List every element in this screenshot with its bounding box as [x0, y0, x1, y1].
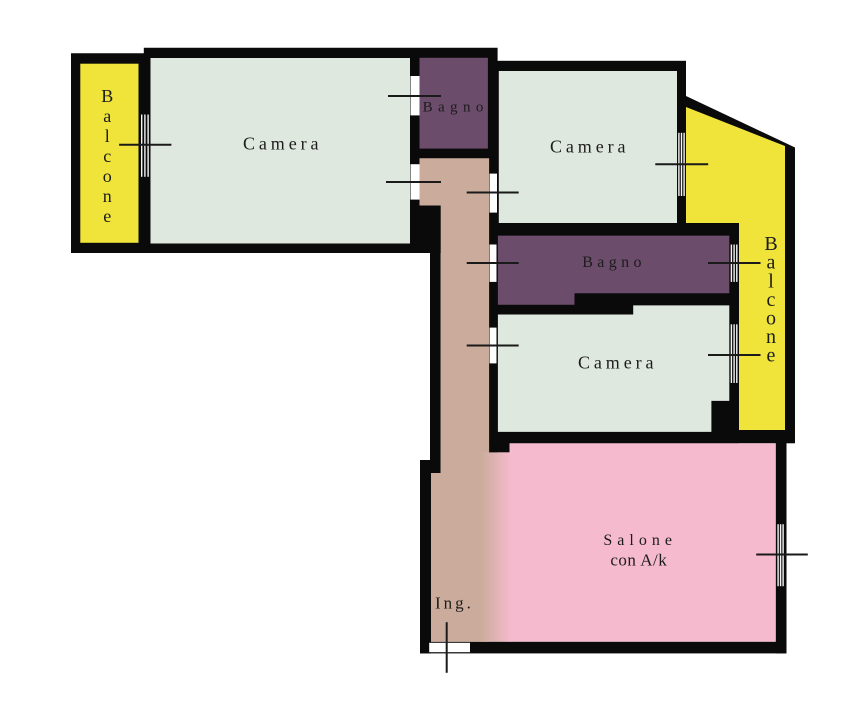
svg-text:c: c: [103, 146, 111, 166]
svg-text:n: n: [103, 186, 112, 206]
svg-text:e: e: [767, 345, 776, 367]
svg-text:Salone: Salone: [603, 532, 677, 549]
svg-text:Bagno: Bagno: [423, 100, 489, 116]
svg-text:Camera: Camera: [578, 352, 657, 372]
svg-text:B: B: [101, 86, 113, 106]
svg-text:Bagno: Bagno: [582, 254, 646, 271]
svg-text:e: e: [103, 206, 111, 226]
svg-text:Camera: Camera: [243, 133, 322, 153]
svg-text:Ing.: Ing.: [435, 594, 474, 613]
svg-text:con A/k: con A/k: [610, 550, 667, 569]
svg-text:a: a: [103, 106, 111, 126]
svg-text:Camera: Camera: [550, 136, 629, 156]
svg-text:l: l: [105, 126, 110, 146]
svg-text:o: o: [103, 166, 112, 186]
